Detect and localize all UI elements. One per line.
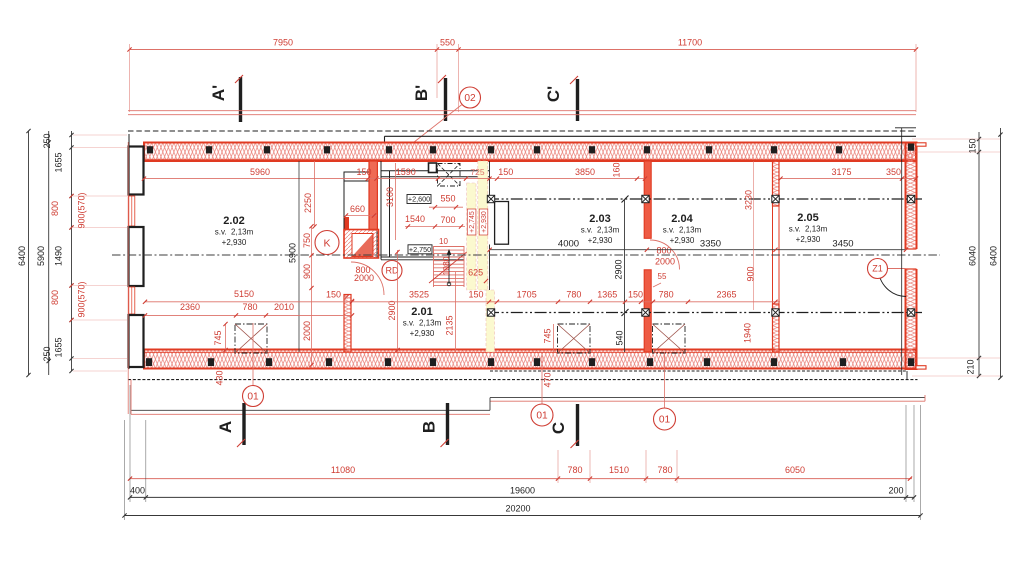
svg-text:470: 470 (543, 372, 553, 387)
svg-text:725: 725 (470, 167, 484, 177)
svg-text:Z1: Z1 (872, 264, 883, 274)
svg-text:780: 780 (657, 465, 672, 475)
svg-text:800: 800 (50, 201, 60, 216)
svg-text:1490: 1490 (54, 246, 64, 266)
svg-text:K: K (323, 237, 330, 249)
svg-text:2.01: 2.01 (411, 306, 432, 318)
svg-text:1365: 1365 (597, 290, 617, 300)
svg-text:2.03: 2.03 (589, 213, 610, 225)
svg-text:210: 210 (966, 359, 976, 374)
svg-text:150: 150 (326, 290, 341, 300)
svg-text:780: 780 (567, 465, 582, 475)
svg-text:A': A' (209, 85, 228, 101)
svg-text:2000: 2000 (302, 321, 312, 341)
svg-text:s.v. 2,13m: s.v. 2,13m (581, 226, 620, 235)
svg-text:10: 10 (439, 237, 448, 246)
svg-text:3175: 3175 (831, 167, 851, 177)
svg-text:6400: 6400 (989, 246, 999, 266)
svg-text:s.v. 2,13m: s.v. 2,13m (663, 226, 702, 235)
svg-text:625: 625 (468, 268, 483, 278)
svg-text:780: 780 (242, 302, 257, 312)
svg-text:2010: 2010 (274, 302, 294, 312)
svg-text:150: 150 (356, 167, 371, 177)
svg-text:20200: 20200 (505, 504, 530, 514)
svg-text:+2,600: +2,600 (408, 195, 430, 204)
svg-text:550: 550 (440, 194, 455, 204)
svg-text:+2,930: +2,930 (796, 235, 821, 244)
svg-text:2360: 2360 (180, 302, 200, 312)
svg-text:C: C (549, 422, 568, 434)
svg-text:+2,930: +2,930 (410, 329, 435, 338)
svg-text:1510: 1510 (609, 465, 629, 475)
svg-text:11080: 11080 (331, 465, 355, 475)
svg-text:2365: 2365 (716, 290, 736, 300)
svg-text:3450: 3450 (832, 239, 853, 250)
svg-text:6040: 6040 (968, 246, 978, 266)
svg-text:4000: 4000 (558, 239, 579, 250)
svg-text:2000: 2000 (655, 257, 675, 267)
svg-text:1540: 1540 (405, 214, 425, 224)
svg-text:s.v. 2,13m: s.v. 2,13m (789, 225, 828, 234)
svg-text:1940: 1940 (743, 323, 753, 343)
svg-text:550: 550 (440, 38, 455, 48)
svg-text:6050: 6050 (785, 465, 805, 475)
svg-text:780: 780 (566, 290, 581, 300)
svg-text:+2,930: +2,930 (222, 238, 247, 247)
svg-text:700: 700 (440, 215, 455, 225)
svg-text:2900: 2900 (387, 300, 397, 320)
svg-text:1590: 1590 (396, 167, 416, 177)
svg-text:250: 250 (42, 346, 52, 361)
svg-text:160: 160 (612, 162, 622, 177)
svg-text:150: 150 (628, 290, 643, 300)
svg-text:2900: 2900 (614, 259, 624, 279)
svg-text:1705: 1705 (517, 290, 537, 300)
svg-text:2.04: 2.04 (671, 213, 693, 225)
svg-text:C': C' (544, 86, 563, 102)
svg-text:+2,750: +2,750 (409, 245, 431, 254)
svg-text:5900: 5900 (36, 246, 46, 266)
svg-text:11700: 11700 (678, 38, 702, 48)
svg-text:7950: 7950 (273, 38, 293, 48)
svg-text:5150: 5150 (234, 289, 254, 299)
svg-text:+2,745: +2,745 (469, 211, 476, 233)
svg-text:B': B' (412, 85, 431, 101)
svg-text:400: 400 (130, 486, 145, 496)
svg-text:2.05: 2.05 (797, 212, 818, 224)
svg-text:s.v. 2,13m: s.v. 2,13m (215, 228, 254, 237)
svg-text:900: 900 (746, 266, 756, 281)
svg-text:3350: 3350 (700, 239, 721, 250)
svg-text:250: 250 (42, 133, 52, 148)
svg-text:2135: 2135 (445, 315, 455, 335)
svg-text:800: 800 (50, 290, 60, 305)
svg-text:02: 02 (464, 93, 476, 104)
svg-text:1655: 1655 (54, 337, 64, 357)
svg-text:RD: RD (386, 266, 399, 276)
svg-text:+2,930: +2,930 (588, 236, 613, 245)
svg-text:745: 745 (213, 330, 223, 345)
svg-text:430: 430 (215, 370, 225, 385)
svg-text:A: A (216, 421, 235, 433)
svg-text:+2,930: +2,930 (670, 236, 695, 245)
svg-text:s.v. 2,13m: s.v. 2,13m (403, 319, 442, 328)
svg-text:19600: 19600 (510, 486, 535, 496)
svg-text:780: 780 (659, 290, 674, 300)
svg-text:750: 750 (302, 233, 312, 248)
svg-text:900: 900 (302, 264, 312, 279)
svg-text:2000: 2000 (354, 273, 374, 283)
svg-text:540: 540 (615, 330, 625, 345)
svg-text:B: B (420, 421, 439, 433)
svg-text:5960: 5960 (250, 167, 270, 177)
svg-text:745: 745 (543, 328, 553, 343)
svg-text:200: 200 (888, 486, 903, 496)
svg-text:150: 150 (968, 138, 978, 153)
svg-text:660: 660 (350, 204, 365, 214)
svg-text:+2,930: +2,930 (481, 211, 488, 233)
svg-text:6400: 6400 (17, 246, 27, 266)
svg-text:2.02: 2.02 (223, 215, 244, 227)
svg-text:55: 55 (658, 272, 667, 281)
svg-text:2250: 2250 (303, 193, 313, 213)
svg-text:1655: 1655 (54, 152, 64, 172)
svg-text:3100: 3100 (385, 187, 395, 207)
svg-text:1080: 1080 (441, 256, 451, 275)
svg-text:01: 01 (659, 415, 671, 426)
svg-text:01: 01 (247, 392, 259, 403)
svg-text:900(570): 900(570) (76, 281, 86, 317)
svg-text:5900: 5900 (288, 243, 298, 263)
svg-text:150: 150 (468, 290, 483, 300)
svg-text:3850: 3850 (575, 167, 595, 177)
svg-text:01: 01 (536, 411, 548, 422)
svg-text:3525: 3525 (409, 290, 429, 300)
svg-text:350: 350 (886, 167, 901, 177)
svg-text:150: 150 (498, 167, 513, 177)
svg-text:900(570): 900(570) (76, 192, 86, 228)
svg-text:3230: 3230 (744, 190, 754, 210)
